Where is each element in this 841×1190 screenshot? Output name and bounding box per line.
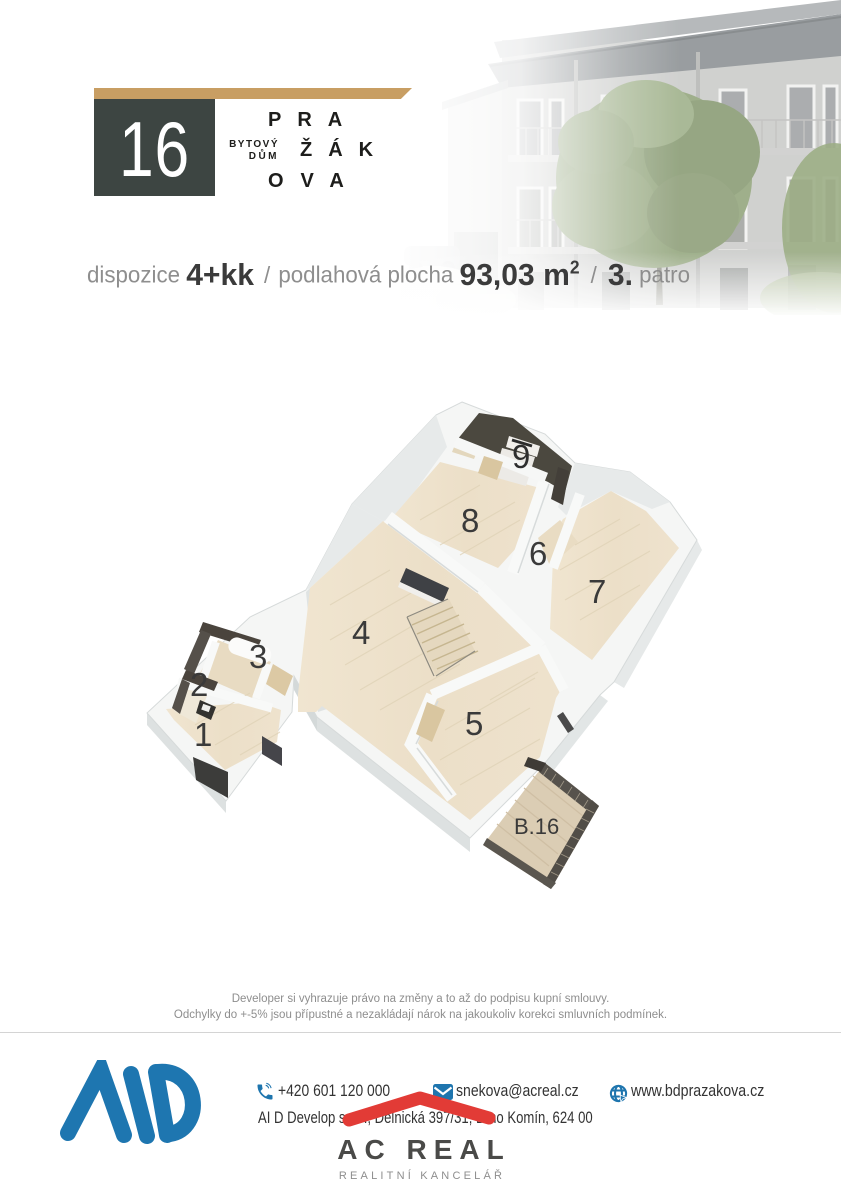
svg-text:7: 7 xyxy=(588,573,606,610)
svg-text:6: 6 xyxy=(529,535,547,572)
svg-text:9: 9 xyxy=(512,438,530,475)
svg-text:8: 8 xyxy=(461,502,479,539)
svg-text:5: 5 xyxy=(465,705,483,742)
svg-text:2: 2 xyxy=(190,666,208,703)
svg-text:B.16: B.16 xyxy=(514,814,559,839)
svg-text:3: 3 xyxy=(249,638,267,675)
svg-text:4: 4 xyxy=(352,614,370,651)
svg-text:1: 1 xyxy=(194,716,212,753)
